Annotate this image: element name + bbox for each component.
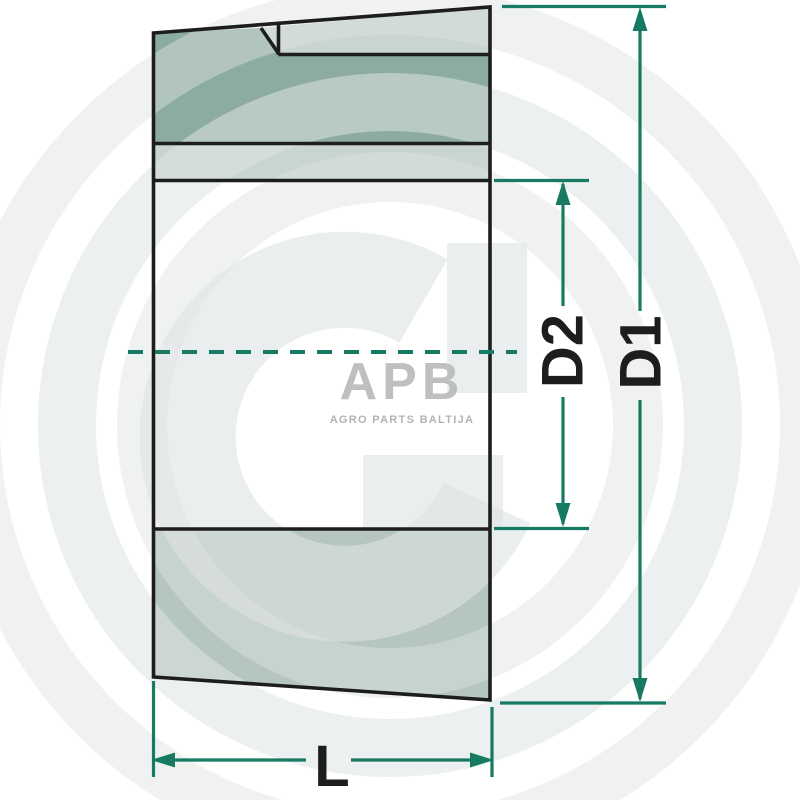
l-label: L	[314, 734, 349, 799]
d1-arrow-down	[633, 678, 648, 702]
d2-arrow-down	[556, 503, 571, 527]
d2-label: D2	[531, 314, 596, 388]
product-drawing-canvas: D1 D2 L APB	[0, 0, 800, 800]
d1-label: D1	[609, 315, 674, 389]
d1-arrow-up	[633, 7, 648, 31]
watermark-g-bar	[363, 455, 503, 528]
watermark-g-arc	[188, 280, 487, 594]
apb-logo-watermark: APB	[337, 356, 467, 408]
apb-logo-tagline: AGRO PARTS BALTIJA	[327, 414, 477, 426]
